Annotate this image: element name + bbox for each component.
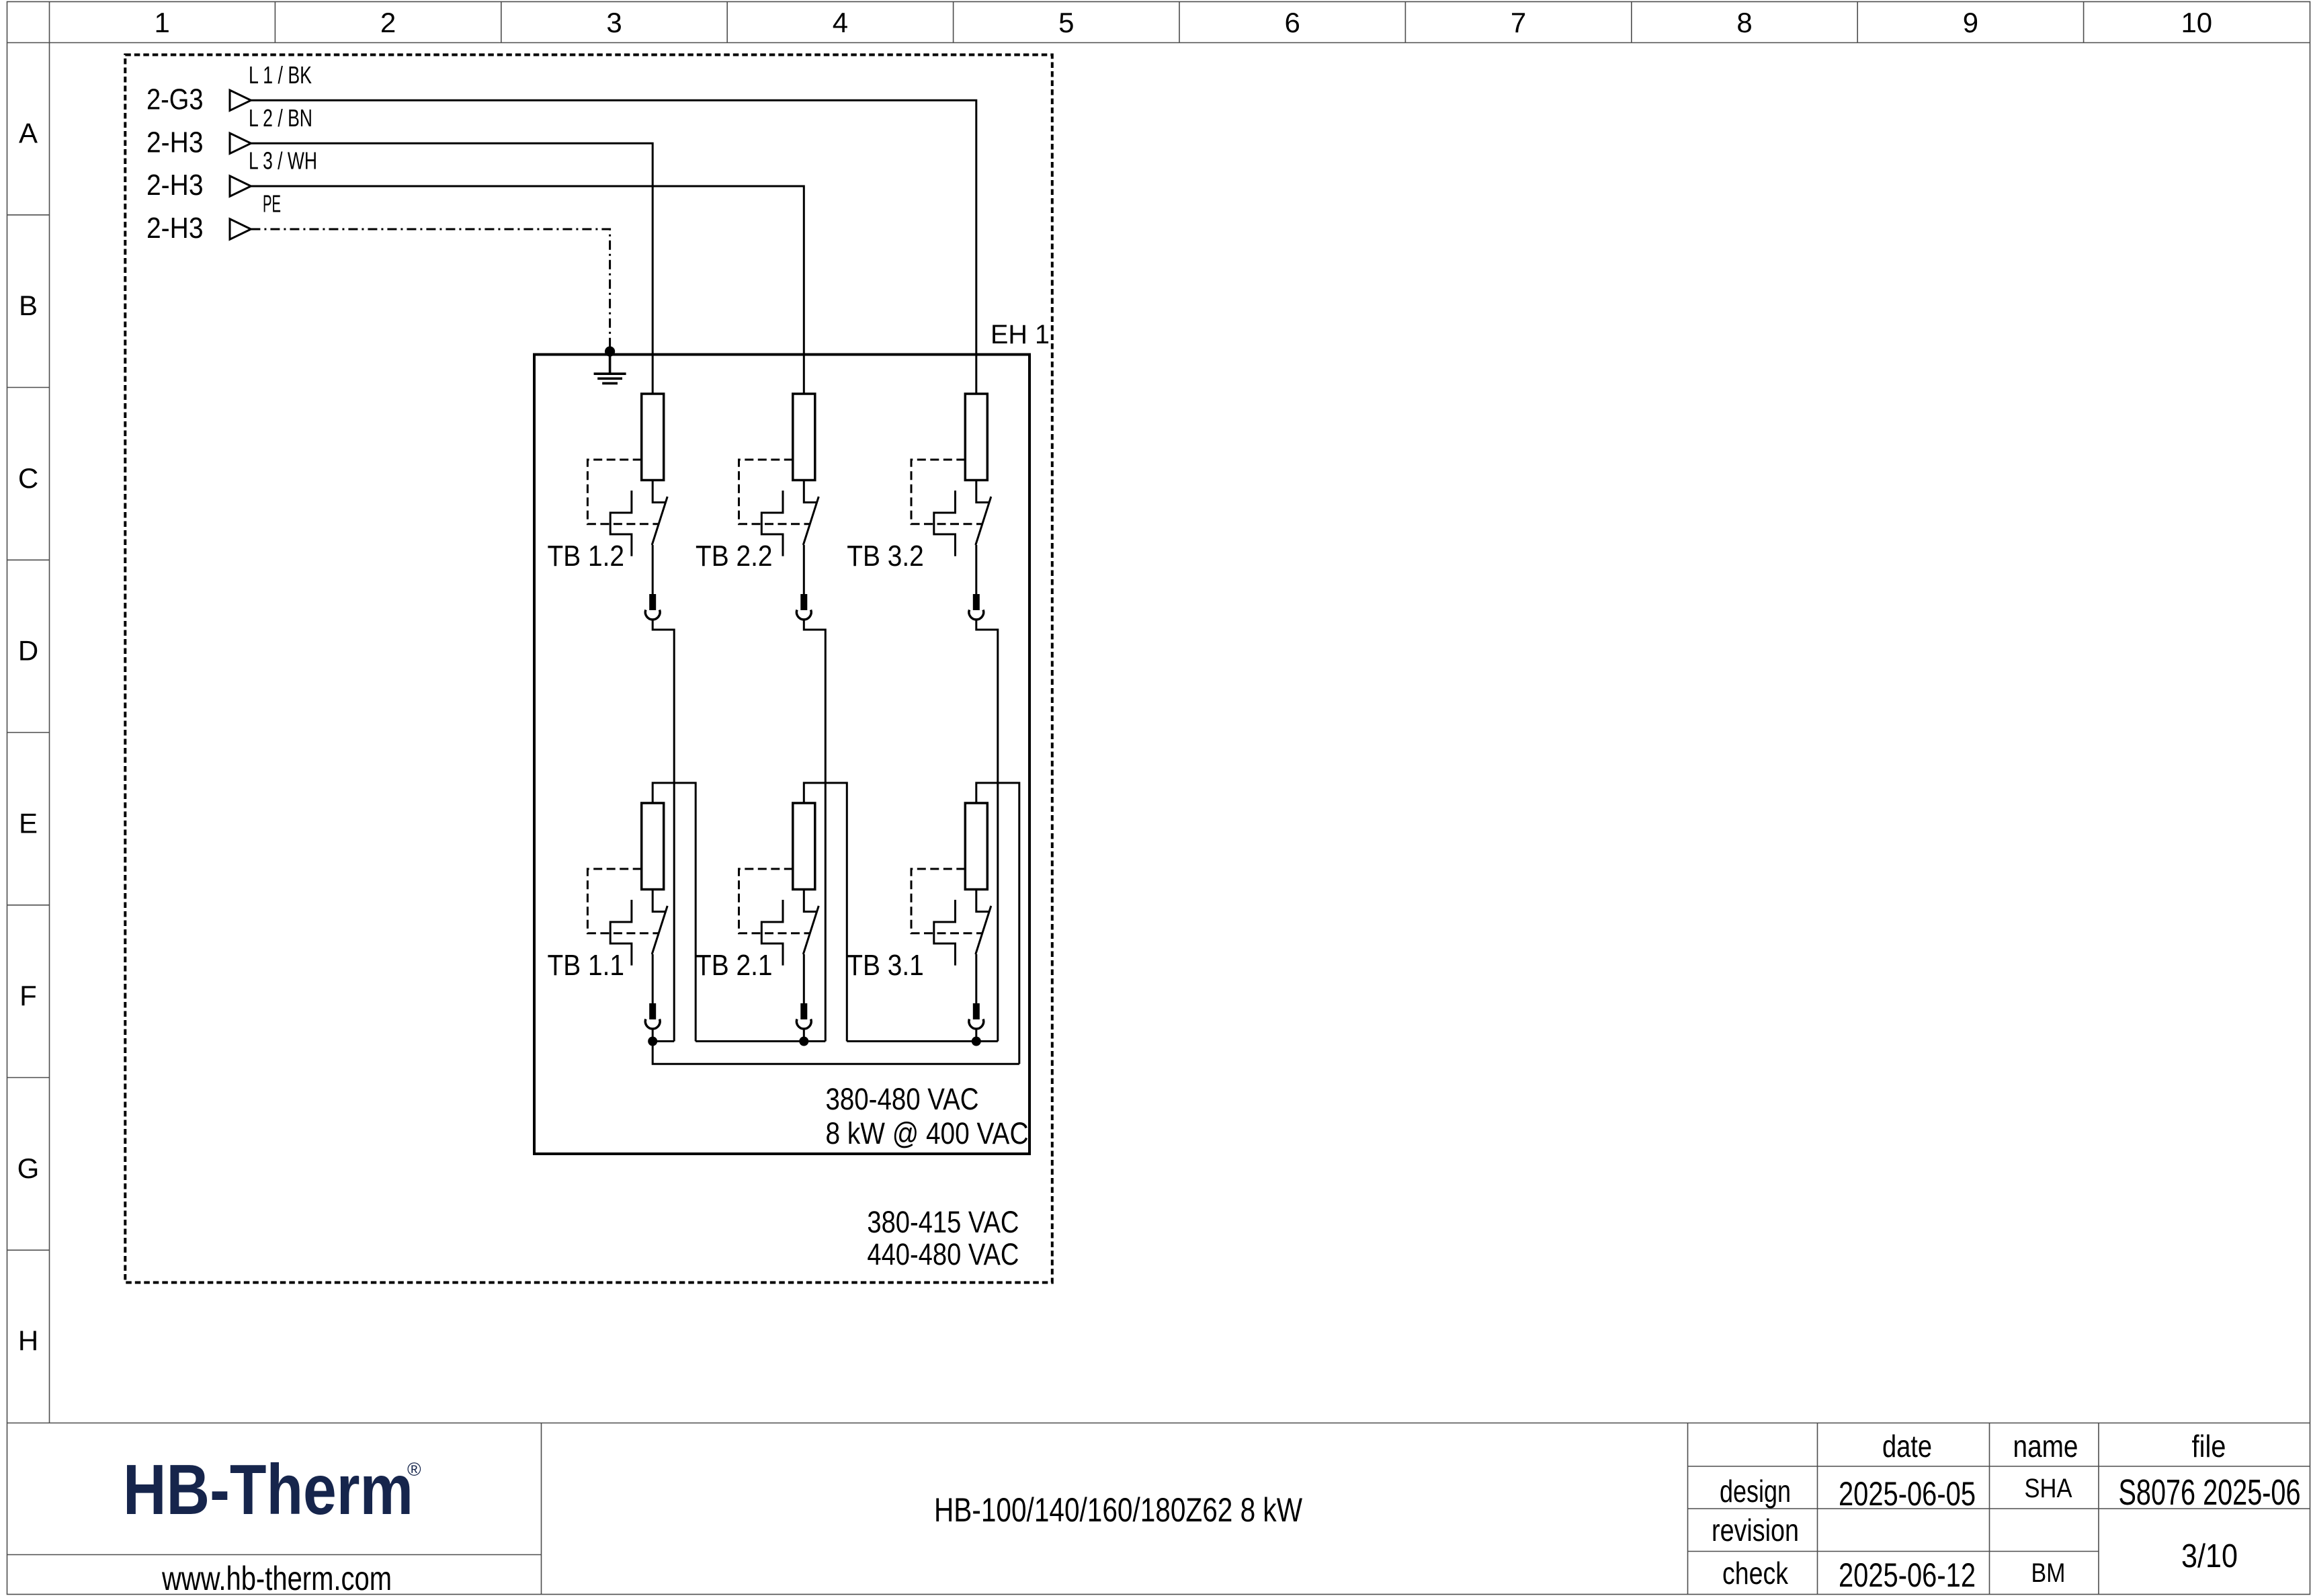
svg-text:L 2 / BN: L 2 / BN <box>249 104 312 132</box>
svg-text:4: 4 <box>833 7 848 38</box>
svg-text:HB-Therm: HB-Therm <box>123 1450 413 1529</box>
svg-text:check: check <box>1722 1556 1789 1591</box>
svg-text:TB 3.2: TB 3.2 <box>847 540 924 573</box>
svg-text:file: file <box>2192 1429 2226 1464</box>
svg-text:2-G3: 2-G3 <box>146 83 204 116</box>
svg-text:H: H <box>18 1325 38 1357</box>
svg-text:E: E <box>19 807 38 839</box>
svg-text:2025-06-05: 2025-06-05 <box>1839 1475 1976 1513</box>
svg-text:TB 1.1: TB 1.1 <box>548 949 625 982</box>
svg-text:www.hb-therm.com: www.hb-therm.com <box>161 1560 392 1596</box>
svg-text:TB 3.1: TB 3.1 <box>847 949 924 982</box>
svg-text:380-415 VAC: 380-415 VAC <box>867 1205 1019 1239</box>
svg-text:440-480 VAC: 440-480 VAC <box>867 1237 1019 1271</box>
svg-text:F: F <box>19 980 37 1011</box>
svg-text:PE: PE <box>263 190 281 218</box>
svg-text:2025-06-12: 2025-06-12 <box>1839 1556 1976 1594</box>
svg-text:SHA: SHA <box>2025 1474 2072 1503</box>
svg-text:date: date <box>1882 1429 1932 1464</box>
svg-text:5: 5 <box>1058 7 1074 38</box>
svg-text:A: A <box>19 117 38 149</box>
svg-text:10: 10 <box>2181 7 2212 38</box>
svg-text:6: 6 <box>1285 7 1300 38</box>
svg-text:TB 2.1: TB 2.1 <box>696 949 773 982</box>
svg-text:L 3 / WH: L 3 / WH <box>249 147 317 175</box>
svg-text:C: C <box>18 462 38 494</box>
svg-text:1: 1 <box>155 7 170 38</box>
svg-text:G: G <box>17 1152 40 1184</box>
svg-text:2: 2 <box>380 7 396 38</box>
svg-text:3: 3 <box>606 7 622 38</box>
svg-text:S8076 2025-06: S8076 2025-06 <box>2119 1472 2301 1513</box>
svg-text:380-480 VAC: 380-480 VAC <box>826 1082 979 1116</box>
svg-text:B: B <box>19 290 38 321</box>
svg-text:BM: BM <box>2031 1558 2066 1588</box>
svg-text:2-H3: 2-H3 <box>146 126 204 159</box>
svg-text:7: 7 <box>1511 7 1526 38</box>
svg-text:8: 8 <box>1736 7 1752 38</box>
svg-text:TB 1.2: TB 1.2 <box>548 540 625 573</box>
svg-text:design: design <box>1720 1474 1791 1509</box>
svg-text:2-H3: 2-H3 <box>146 212 204 245</box>
svg-text:L 1 / BK: L 1 / BK <box>249 61 312 89</box>
svg-text:®: ® <box>407 1459 421 1480</box>
svg-text:3/10: 3/10 <box>2181 1538 2238 1574</box>
svg-text:9: 9 <box>1963 7 1978 38</box>
svg-text:name: name <box>2013 1429 2078 1464</box>
svg-text:TB 2.2: TB 2.2 <box>696 540 773 573</box>
svg-text:8 kW @ 400 VAC: 8 kW @ 400 VAC <box>826 1116 1029 1150</box>
svg-text:revision: revision <box>1712 1513 1799 1548</box>
svg-text:D: D <box>18 635 38 667</box>
svg-text:2-H3: 2-H3 <box>146 169 204 202</box>
svg-text:EH 1: EH 1 <box>991 320 1050 349</box>
svg-text:HB-100/140/160/180Z62 8 kW: HB-100/140/160/180Z62 8 kW <box>934 1491 1303 1529</box>
